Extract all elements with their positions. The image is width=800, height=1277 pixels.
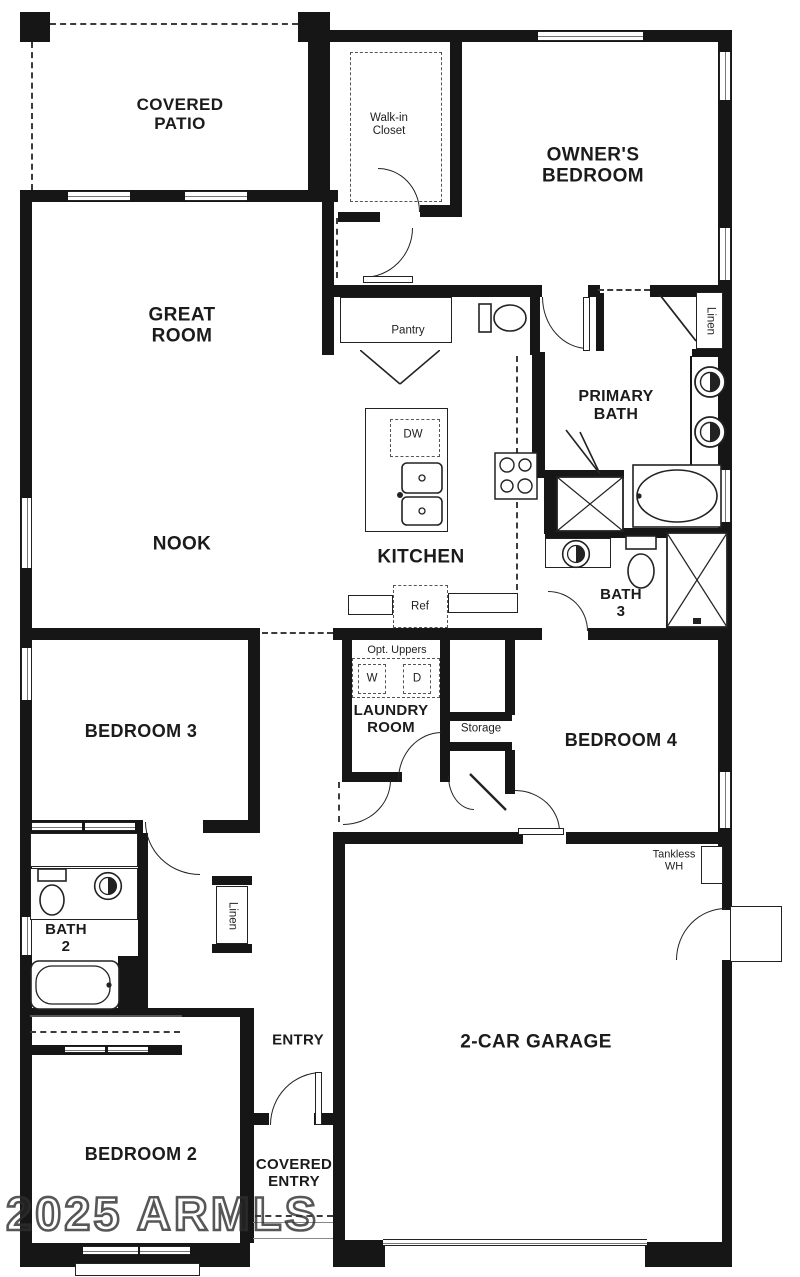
window-owner-right-1	[719, 52, 731, 100]
door-bath3	[548, 591, 588, 631]
room-label-kitchen: KITCHEN	[377, 546, 464, 567]
wall-br2-closet-bottom	[28, 1045, 182, 1055]
shower-door-icon	[560, 428, 602, 476]
bedroom2-closet-dash	[30, 1031, 180, 1033]
tankless-water-heater	[701, 846, 723, 884]
wall-bedroom3-right	[248, 640, 260, 822]
label-opt-uppers: Opt. Uppers	[367, 644, 426, 656]
room-label-pantry: Pantry	[391, 325, 424, 338]
wall-linen2-top	[212, 876, 252, 885]
wall-laundry-left	[342, 640, 352, 782]
wall-left	[20, 190, 32, 1267]
window-bath2-left	[21, 917, 32, 955]
bedroom2-closet-front	[30, 1015, 182, 1017]
door-hall	[343, 780, 391, 825]
door-bedroom3	[145, 822, 200, 875]
wall-right-garage-b	[722, 960, 732, 1267]
cooktop-icon	[494, 452, 538, 500]
wall-garage-top-b	[566, 832, 728, 844]
wall-garage-bottom-left	[333, 1240, 385, 1267]
shower-primary-icon	[556, 476, 624, 532]
label-linen-primary: Linen	[704, 307, 717, 335]
room-label-owners-bedroom: OWNER'S BEDROOM	[542, 145, 644, 188]
label-storage: Storage	[461, 723, 501, 736]
kitchen-counter-right	[448, 593, 518, 613]
linen-primary-door-icon	[658, 293, 698, 343]
slider-bedroom3-closet-2	[85, 822, 135, 831]
wall-wic-bottom-corner	[420, 205, 462, 217]
wall-west-upper	[308, 40, 330, 192]
room-label-great-room: GREAT ROOM	[148, 305, 215, 348]
sink-primary-2-icon	[692, 414, 728, 450]
wall-garage-left	[333, 844, 345, 1240]
wall-garage-bottom-right	[645, 1242, 730, 1267]
toilet-powder-icon	[478, 300, 530, 336]
slider-bedroom3-closet-1	[32, 822, 82, 831]
wall-garage-top-a	[333, 832, 523, 844]
wall-toiletroom-right	[530, 293, 540, 355]
wall-bedroom4-left-a	[505, 640, 515, 715]
window-greatroom-left	[21, 498, 32, 568]
label-linen-hall: Linen	[226, 902, 239, 930]
room-label-bath-3: BATH 3	[600, 587, 642, 621]
bedroom4-door-leaf-icon	[468, 772, 508, 812]
garage-service-landing	[730, 906, 782, 962]
room-label-primary-bath: PRIMARY BATH	[578, 388, 653, 424]
sink-primary-1-icon	[692, 364, 728, 400]
label-dryer: D	[413, 673, 421, 686]
toilet-bath2-icon	[36, 868, 68, 920]
wall-tub-block	[118, 956, 140, 1012]
wall-storage-top	[448, 712, 512, 721]
door-garage-service	[676, 908, 726, 960]
wall-greatroom-right	[322, 190, 334, 355]
wall-bath-stub	[596, 293, 604, 351]
patio-open-edge-left	[31, 42, 33, 190]
door-owner-suite-leaf	[363, 276, 413, 283]
label-washer: W	[367, 673, 378, 686]
wall-patio-corner-tl	[20, 12, 50, 42]
room-label-laundry-room: LAUNDRY ROOM	[354, 703, 429, 737]
wall-linen1-bottom	[692, 349, 728, 357]
floor-plan: COVERED PATIO Walk-in Closet OWNER'S BED…	[0, 0, 800, 1277]
shower-bath3-icon	[666, 532, 728, 628]
window-owner-right-2	[719, 228, 731, 280]
kitchen-sink-icon	[396, 460, 446, 530]
wall-patio-corner-tr	[298, 12, 330, 42]
kitchen-counter-left	[348, 595, 393, 615]
window-bedroom4-right	[719, 772, 731, 828]
slider-bedroom2-closet-1	[65, 1046, 105, 1053]
door-laundry	[398, 732, 442, 780]
wall-storage-bottom	[448, 742, 512, 751]
sink-bath3-icon	[560, 538, 592, 570]
patio-open-edge-top	[50, 23, 298, 25]
opening-owner-hall	[336, 218, 338, 278]
toilet-bath3-icon	[624, 534, 658, 594]
wall-wic-right	[450, 30, 462, 210]
slider-bedroom2-closet-2	[108, 1046, 148, 1053]
window-bedroom2-bottom-1	[83, 1246, 138, 1255]
tub-primary-icon	[632, 464, 722, 528]
room-label-nook: NOOK	[153, 533, 212, 554]
room-label-walk-in-closet: Walk-in Closet	[370, 112, 408, 138]
room-label-bath-2: BATH 2	[45, 922, 87, 956]
wall-bedroom3-bottom-b	[203, 820, 260, 833]
window-greatroom-top-2	[185, 191, 247, 201]
porch-step	[75, 1263, 200, 1276]
wall-right-garage-a	[722, 862, 732, 910]
kitchen-counter-dash-1	[516, 356, 518, 454]
room-label-bedroom-3: BEDROOM 3	[85, 721, 198, 741]
room-label-bedroom-2: BEDROOM 2	[85, 1144, 198, 1164]
door-front-entry-leaf	[315, 1072, 322, 1125]
kitchen-counter-dash-2	[516, 502, 518, 590]
label-tankless-wh: Tankless WH	[653, 849, 696, 874]
window-bedroom3-left	[21, 648, 32, 700]
armls-watermark: 2025 ARMLS	[6, 1186, 319, 1241]
door-garage-entry-leaf	[518, 828, 564, 835]
door-primary-bath-leaf	[583, 297, 590, 351]
wall-entry-bottom-a	[253, 1113, 269, 1125]
wall-linen2-bottom	[212, 944, 252, 953]
window-owner-top	[538, 31, 643, 41]
window-greatroom-top-1	[68, 191, 130, 201]
room-label-entry: ENTRY	[272, 1033, 324, 1050]
wall-wic-bottom	[338, 212, 380, 222]
opening-hall-nook	[262, 632, 333, 634]
sink-bath2-icon	[92, 870, 124, 902]
wall-mid-b	[333, 628, 542, 640]
door-owner-suite	[363, 228, 413, 278]
door-primary-bath	[542, 297, 588, 349]
bedroom3-closet	[30, 833, 138, 867]
wall-main-top	[330, 30, 728, 42]
pantry-doors-icon	[360, 350, 440, 388]
wall-mid-c	[588, 628, 728, 640]
room-label-bedroom-4: BEDROOM 4	[565, 730, 678, 750]
door-garage-entry	[515, 790, 560, 832]
hall-opening-dash	[338, 782, 340, 822]
room-label-garage: 2-CAR GARAGE	[460, 1031, 612, 1052]
room-label-covered-patio: COVERED PATIO	[137, 95, 224, 133]
garage-door	[383, 1239, 647, 1246]
opening-owner-vanity	[598, 289, 650, 291]
label-dw: DW	[403, 429, 422, 442]
wall-owner-bottom-a	[330, 285, 542, 297]
label-ref: Ref	[411, 601, 429, 614]
tub-bath2-icon	[30, 960, 120, 1010]
wall-mid-a	[20, 628, 260, 640]
window-bedroom2-bottom-2	[140, 1246, 190, 1255]
